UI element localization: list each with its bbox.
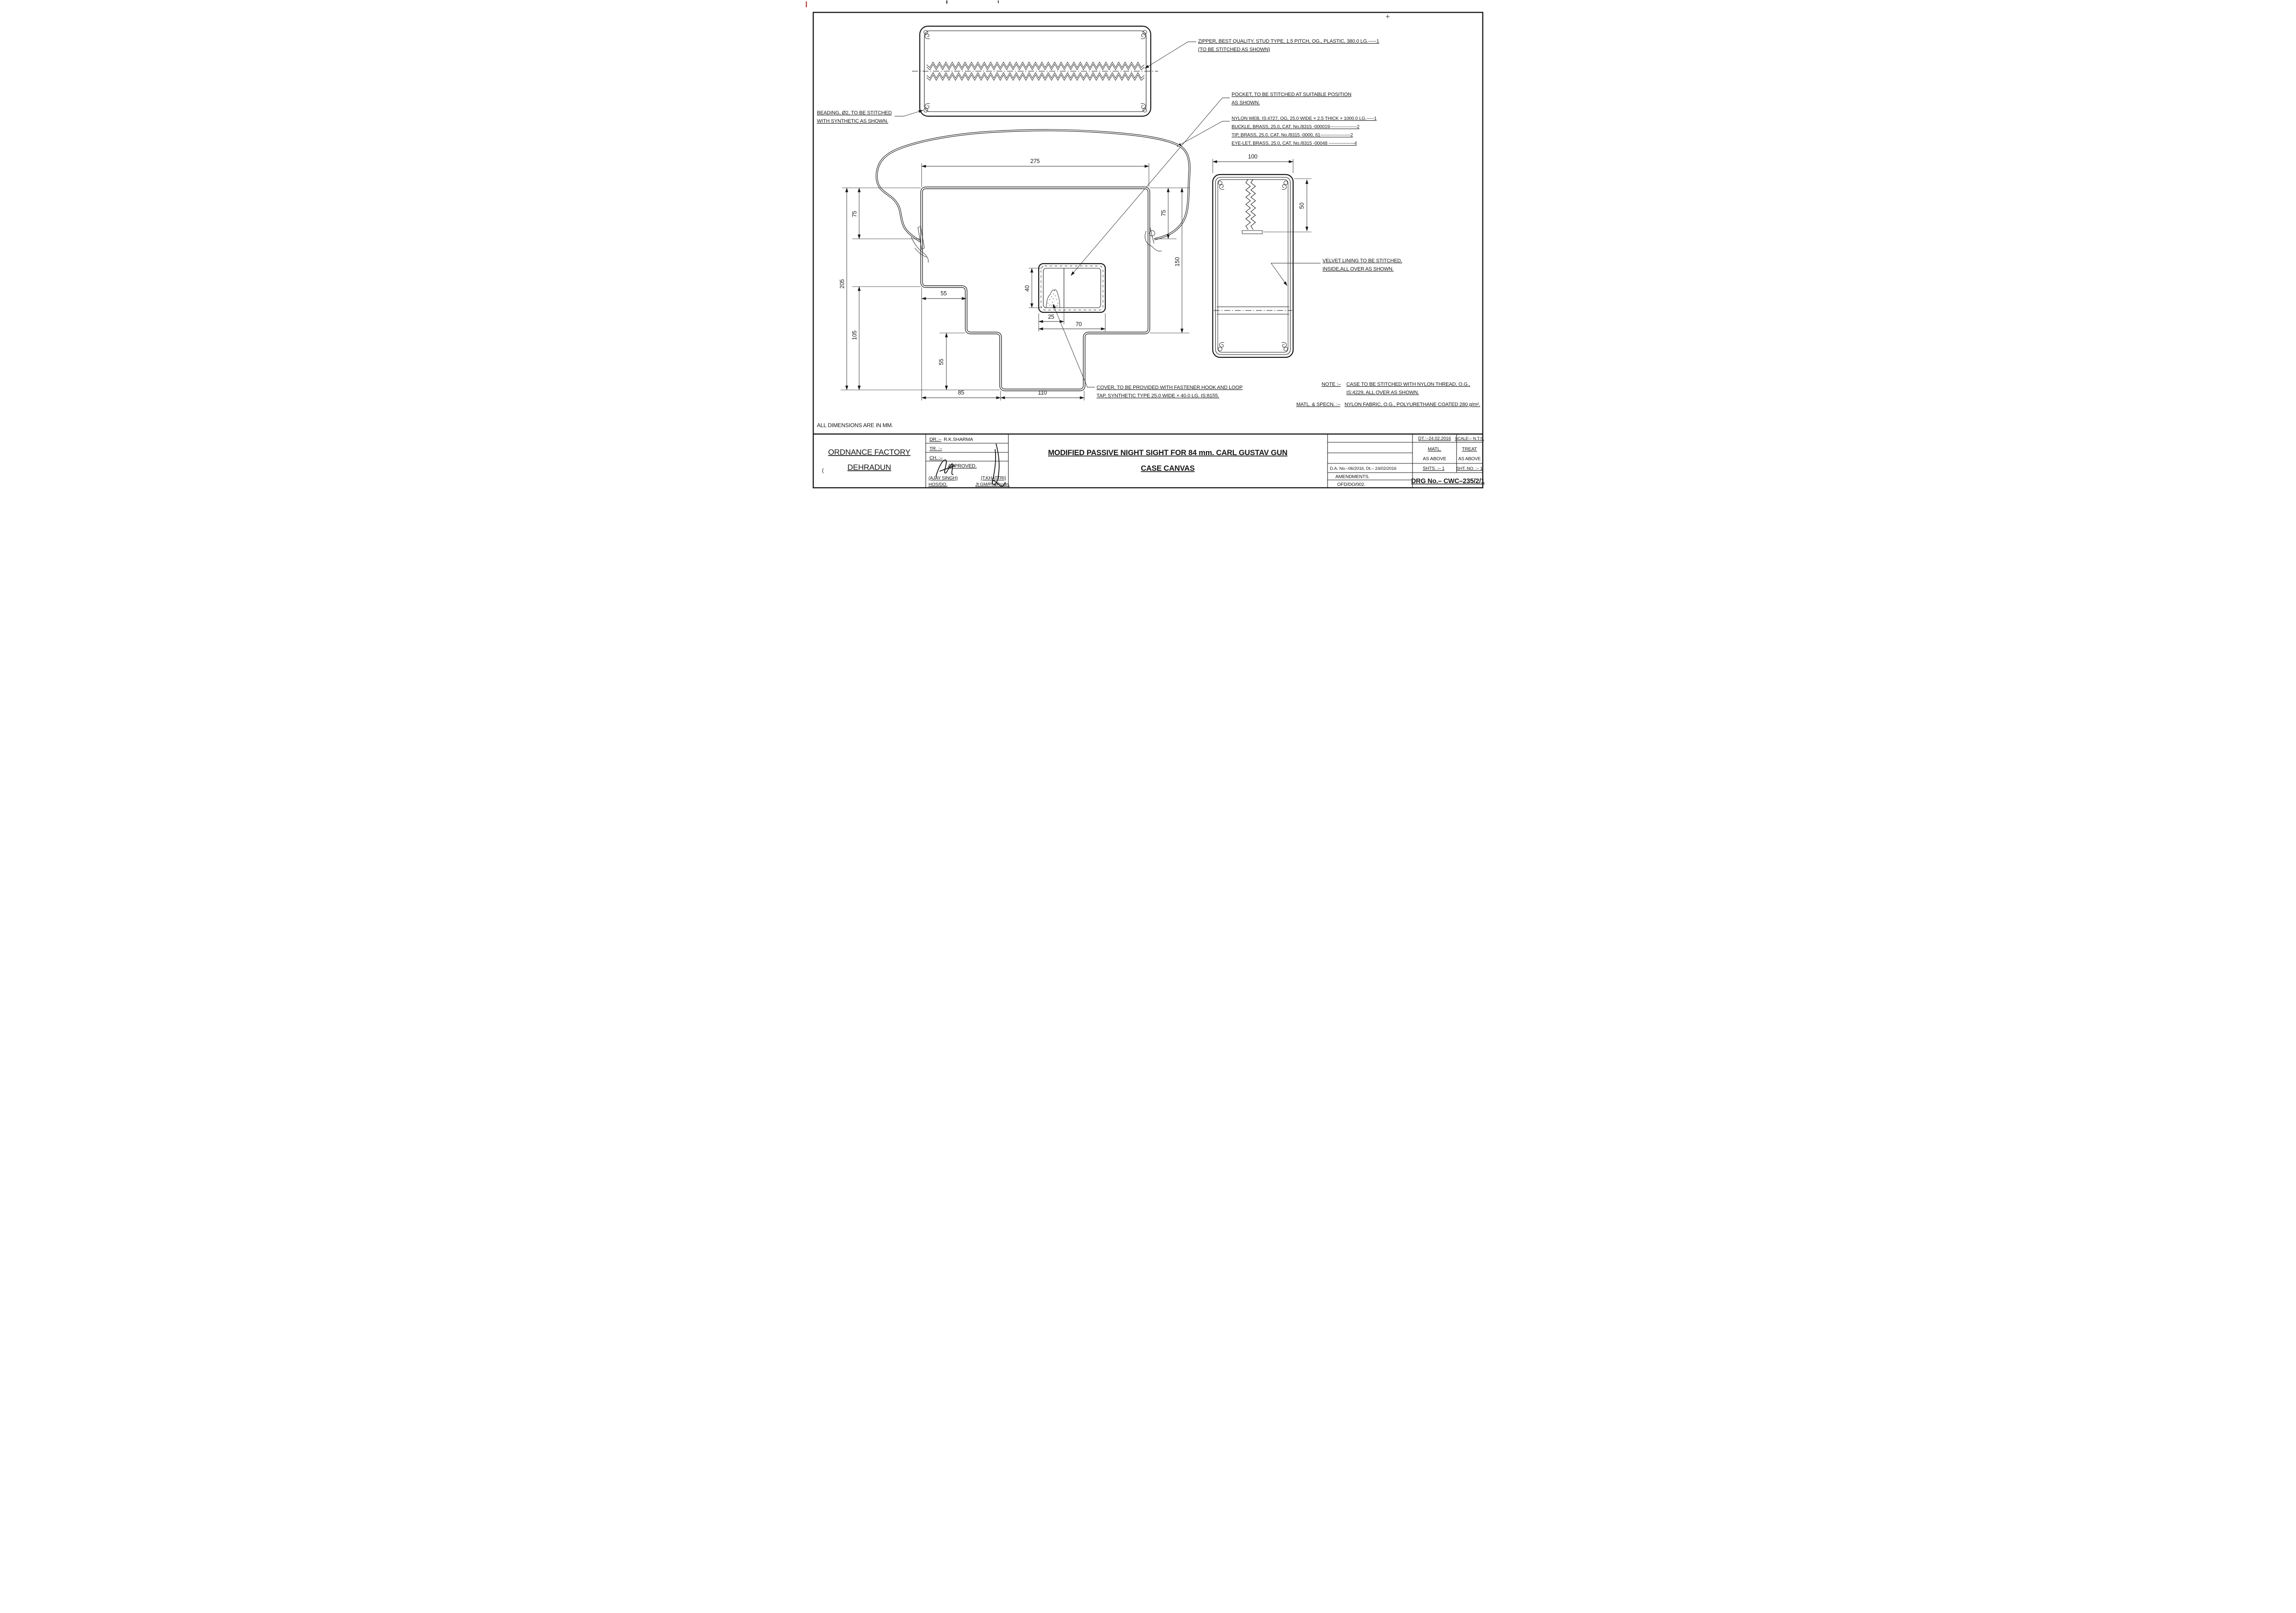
strap-buckle-detail — [1145, 227, 1162, 251]
side-view-inner-outline — [1218, 180, 1288, 352]
sign2-name: (T.KHATTRI) — [981, 476, 1006, 481]
pocket-label-line2: AS SHOWN. — [1232, 100, 1260, 106]
cover-label-line1: COVER, TO BE PROVIDED WITH FASTENER HOOK… — [1097, 385, 1243, 390]
beading-corner-curl — [1282, 181, 1288, 190]
parts-list: NYLON WEB, IS:4727, OG, 25.0 WIDE × 2.5 … — [1177, 116, 1377, 147]
checked-by-row: CH. :– — [929, 455, 943, 461]
amendments-cell: AMENDMENTS. — [1335, 474, 1369, 479]
sign2-role: Jt.GM/Pl.&Prodn. — [975, 482, 1010, 487]
zipper-teeth-row — [927, 64, 1144, 70]
matl-value-cell: AS ABOVE — [1423, 456, 1446, 462]
velvet-leader-line — [1271, 263, 1321, 286]
engineering-drawing-canvas: ( ZIPPER, BEST QUALITY, STUD TYPE, 1.5 P… — [788, 0, 1508, 494]
pocket-label-line1: POCKET, TO BE STITCHED AT SUITABLE POSIT… — [1232, 92, 1351, 97]
zipper-teeth-row — [927, 75, 1144, 80]
pocket-stitch-ring — [1041, 266, 1103, 310]
shoulder-strap — [877, 130, 1189, 243]
dim-110: 110 — [1038, 389, 1047, 396]
traced-by-row: TR. :– — [929, 446, 942, 451]
general-notes: NOTE :– CASE TO BE STITCHED WITH NYLON T… — [1296, 382, 1480, 407]
pocket-outer — [1039, 264, 1105, 312]
dim-100: 100 — [1248, 153, 1258, 160]
side-view-mid-outline — [1216, 177, 1290, 355]
pocket-detail — [1039, 264, 1105, 312]
note-line2: IS:4229, ALL OVER AS SHOWN. — [1346, 390, 1419, 395]
side-view-case-end: 100 50 — [1213, 153, 1311, 357]
zipper-label-line1: ZIPPER, BEST QUALITY, STUD TYPE, 1.5 PIT… — [1198, 39, 1379, 44]
drg-number-cell: DRG No.– CWC–235/2/1 — [1411, 478, 1485, 485]
sheet-no-cell: SHT. NO. :– 1 — [1456, 466, 1482, 471]
dim-105: 105 — [851, 331, 858, 340]
drawing-title-line2: CASE CANVAS — [1141, 464, 1194, 473]
velvet-callout: VELVET LINING TO BE STITCHED, INSIDE,ALL… — [1271, 258, 1402, 286]
dim-85: 85 — [958, 389, 964, 396]
org-name-line1: ORDNANCE FACTORY — [828, 448, 910, 457]
parts-item-nylon-web: NYLON WEB, IS:4727, OG, 25.0 WIDE × 2.5 … — [1232, 116, 1377, 121]
date-cell: DT.:–24.02.2016 — [1418, 436, 1451, 441]
beading-callout: BEADING, Ø2, TO BE STITCHED WITH SYNTHET… — [817, 110, 923, 124]
matl-label-cell: MATL. — [1428, 446, 1441, 452]
treat-value-cell: AS ABOVE — [1458, 457, 1481, 462]
parts-item-eyelet: EYE-LET, BRASS, 25.0, CAT. No./8315 -000… — [1232, 141, 1357, 146]
dimensions: 275 205 105 75 75 150 55 55 85 110 40 25 — [839, 158, 1182, 398]
title-block: ORDNANCE FACTORY DEHRADUN DR.:–R.K.SHARM… — [813, 434, 1485, 488]
parts-item-tip: TIP, BRASS, 25.0, CAT. No./8315 -0000, 6… — [1232, 133, 1353, 138]
side-view-outer-outline — [1213, 175, 1293, 357]
scale-cell: SCALE:– N.T.S. — [1455, 436, 1484, 441]
beading-corner-curl — [1282, 342, 1288, 351]
drawing-title-line1: MODIFIED PASSIVE NIGHT SIGHT FOR 84 mm. … — [1048, 449, 1287, 457]
cover-flap-shape — [1046, 290, 1060, 308]
stray-paren-mark: ( — [822, 467, 824, 474]
zipper-callout: ZIPPER, BEST QUALITY, STUD TYPE, 1.5 PIT… — [1145, 39, 1379, 68]
dim-150: 150 — [1174, 257, 1181, 267]
zipper-end-zigzag — [1246, 179, 1250, 230]
dim-75-left: 75 — [851, 211, 858, 217]
matl-specn-text: NYLON FABRIC, O.G., POLYURETHANE COATED … — [1345, 402, 1480, 407]
zipper-teeth-row — [927, 62, 1144, 68]
drawn-by-row: DR.:–R.K.SHARMA — [929, 437, 973, 442]
beading-corner-curl — [1218, 342, 1224, 351]
beading-label-line1: BEADING, Ø2, TO BE STITCHED — [817, 110, 892, 116]
dim-55-vertical: 55 — [938, 359, 945, 365]
sign1-role: HOS/DO. — [929, 482, 947, 487]
beading-corner-curl — [1218, 181, 1224, 190]
note-line1: CASE TO BE STITCHED WITH NYLON THREAD, O… — [1346, 382, 1470, 387]
dim-275: 275 — [1030, 158, 1040, 164]
dim-25: 25 — [1048, 314, 1054, 320]
drawing-sheet: ( ZIPPER, BEST QUALITY, STUD TYPE, 1.5 P… — [788, 0, 1508, 494]
dim-50: 50 — [1299, 203, 1305, 209]
cover-label-line2: TAP, SYNTHETIC TYPE 25.0 WIDE × 40.0 LG.… — [1097, 393, 1219, 399]
main-view-case-pattern: 275 205 105 75 75 150 55 55 85 110 40 25 — [839, 130, 1189, 401]
dim-55-horizontal: 55 — [940, 290, 947, 297]
note-label: NOTE :– — [1322, 382, 1341, 387]
strap-tip-detail — [911, 226, 929, 263]
beading-leader-line — [895, 110, 923, 116]
nylon-web-leader-line — [1177, 121, 1230, 147]
zipper-label-line2: (TO BE STITCHED AS SHOWN) — [1198, 47, 1270, 52]
top-view-case-top — [912, 26, 1158, 116]
da-number-cell: D.A. No.–06/2016, Dt.– 24/02/2016 — [1330, 466, 1396, 471]
pattern-outline-outer — [922, 188, 1149, 390]
ofd-cell: OFD/DO/002. — [1337, 482, 1365, 487]
matl-specn-label: MATL. & SPECN. :– — [1296, 402, 1341, 407]
beading-label-line2: WITH SYNTHETIC AS SHOWN. — [817, 118, 888, 124]
sheets-cell: SHTS. :– 1 — [1423, 466, 1445, 471]
cover-leader-line — [1053, 304, 1095, 387]
org-name-line2: DEHRADUN — [847, 463, 891, 472]
sign1-name: (AJAY SINGH) — [929, 476, 957, 481]
dim-70: 70 — [1075, 321, 1082, 327]
pattern-outline-inner — [922, 188, 1149, 390]
parts-item-buckle: BUCKLE, BRASS, 25.0, CAT. No./8315 -0000… — [1232, 124, 1360, 130]
zipper-stop-bar — [1242, 231, 1262, 234]
dim-40: 40 — [1024, 285, 1030, 292]
velvet-label-line2: INSIDE,ALL OVER AS SHOWN. — [1322, 266, 1394, 272]
zipper-teeth-row — [927, 73, 1144, 78]
zipper-leader-line — [1145, 42, 1196, 68]
dim-75-right: 75 — [1160, 210, 1167, 216]
signature-ajay-singh — [936, 460, 955, 477]
zipper-end-zigzag — [1251, 179, 1255, 230]
all-dimensions-note: ALL DIMENSIONS ARE IN MM. — [817, 422, 893, 429]
treat-label-cell: TREAT — [1462, 446, 1478, 452]
velvet-label-line1: VELVET LINING TO BE STITCHED, — [1322, 258, 1402, 264]
dim-205: 205 — [839, 279, 845, 289]
